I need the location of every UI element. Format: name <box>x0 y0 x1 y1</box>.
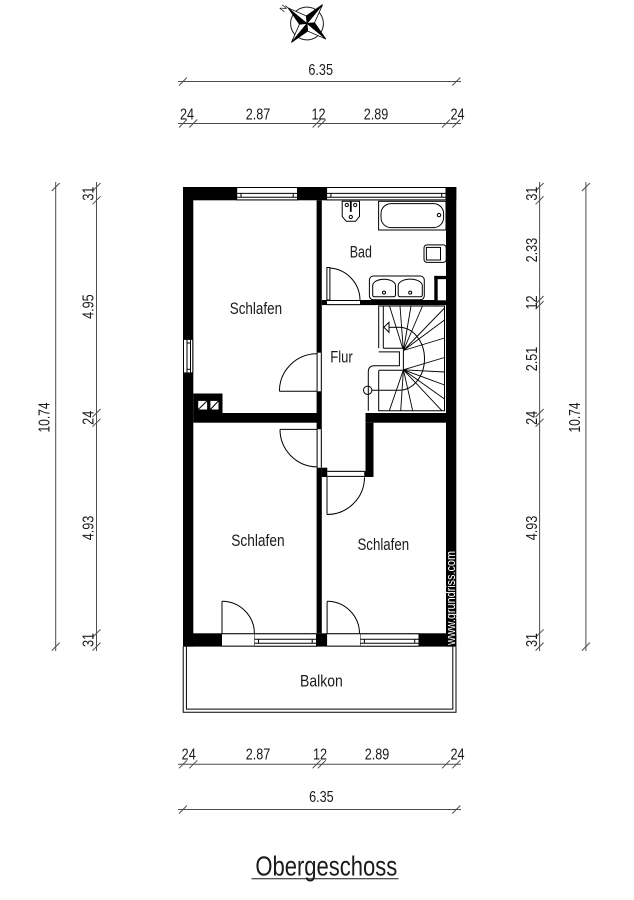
svg-text:31: 31 <box>524 633 541 647</box>
svg-text:4.93: 4.93 <box>524 516 541 541</box>
svg-text:24: 24 <box>182 747 196 764</box>
svg-text:12: 12 <box>313 747 327 764</box>
svg-text:2.89: 2.89 <box>364 107 389 124</box>
svg-text:Schlafen: Schlafen <box>230 299 282 318</box>
svg-text:12: 12 <box>311 107 325 124</box>
svg-text:Bad: Bad <box>350 243 372 262</box>
svg-text:10.74: 10.74 <box>567 402 584 432</box>
svg-text:24: 24 <box>80 411 97 425</box>
svg-text:31: 31 <box>80 633 97 647</box>
svg-text:24: 24 <box>450 107 464 124</box>
svg-text:12: 12 <box>524 295 541 309</box>
svg-text:31: 31 <box>524 186 541 200</box>
svg-text:Balkon: Balkon <box>300 672 343 691</box>
svg-text:Schlafen: Schlafen <box>231 531 284 550</box>
svg-text:2.33: 2.33 <box>524 238 541 263</box>
svg-text:4.95: 4.95 <box>80 294 97 319</box>
svg-text:Schlafen: Schlafen <box>357 535 409 554</box>
svg-text:10.74: 10.74 <box>37 402 54 432</box>
svg-text:2.89: 2.89 <box>365 747 390 764</box>
svg-text:4.93: 4.93 <box>80 516 97 541</box>
svg-text:24: 24 <box>180 107 194 124</box>
svg-text:2.87: 2.87 <box>246 107 271 124</box>
svg-text:Flur: Flur <box>330 348 353 367</box>
svg-text:2.51: 2.51 <box>524 347 541 372</box>
svg-text:Obergeschoss: Obergeschoss <box>255 851 397 882</box>
svg-text:24: 24 <box>450 747 464 764</box>
svg-text:6.35: 6.35 <box>308 62 333 79</box>
svg-text:www.grundriss.com: www.grundriss.com <box>443 551 458 646</box>
svg-text:24: 24 <box>524 411 541 425</box>
svg-text:6.35: 6.35 <box>309 789 334 806</box>
svg-text:31: 31 <box>80 186 97 200</box>
svg-text:2.87: 2.87 <box>246 747 271 764</box>
